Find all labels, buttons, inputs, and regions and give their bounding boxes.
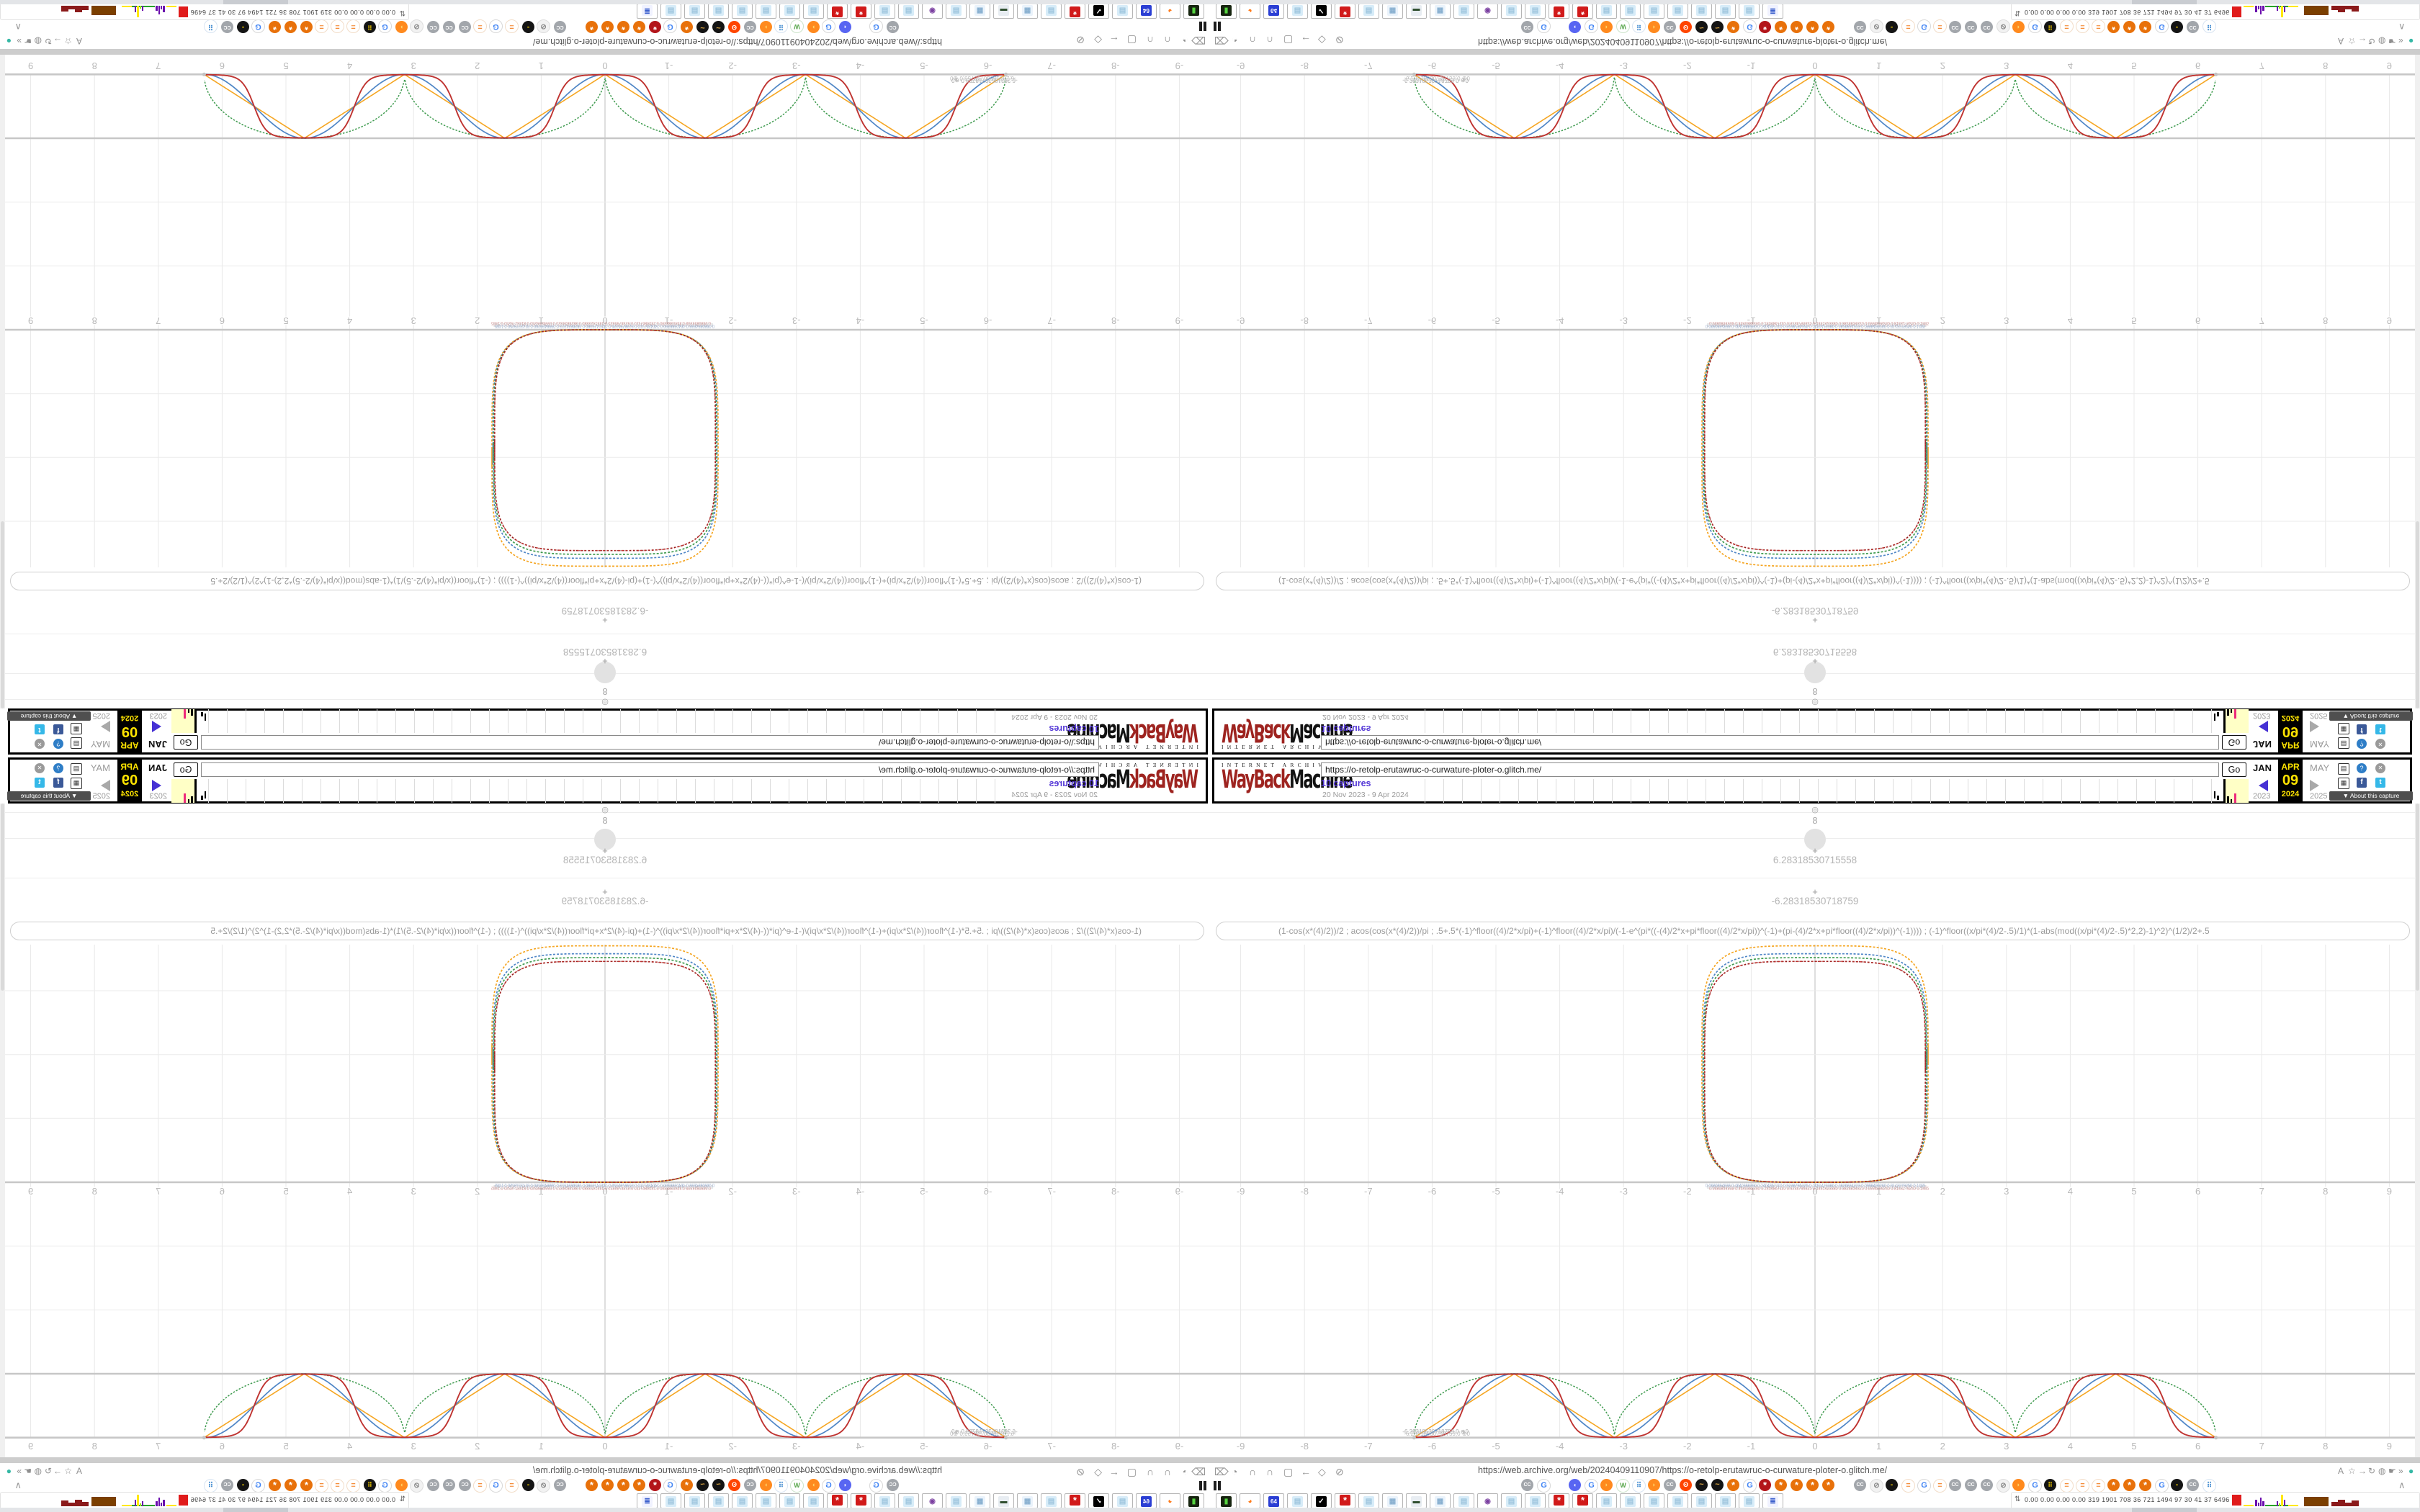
formula-input[interactable]: (1-cos(x*(4)/2))/2 ; acos(cos(x*(4)/2))/…	[1216, 922, 2410, 940]
cc-extension-icon[interactable]: CC	[1854, 21, 1866, 33]
go-button[interactable]: Go	[2222, 762, 2246, 777]
horizontal-scrollbar[interactable]	[1210, 1457, 2420, 1463]
google-extension-icon[interactable]: G	[2028, 1479, 2042, 1493]
firefox-extension-icon[interactable]: ◗	[395, 1479, 408, 1491]
taskbar-button-redgear[interactable]: *	[1335, 4, 1355, 19]
forward-icon[interactable]: →	[2358, 1466, 2367, 1476]
taskbar-button-notepad[interactable]: ▤	[684, 1493, 705, 1508]
taskbar-button-owl[interactable]: ◉	[922, 4, 943, 19]
google-extension-icon[interactable]: G	[869, 19, 883, 33]
sun-extension-icon[interactable]: *	[617, 1479, 629, 1491]
overflow-chevrons-icon[interactable]: »	[17, 1466, 22, 1476]
speaker-icon[interactable]: ◔	[1183, 35, 1188, 46]
stack-extension-icon[interactable]: ≡	[473, 1479, 487, 1493]
bookmark-star-icon[interactable]: ☆	[2348, 1466, 2356, 1476]
stack-extension-icon[interactable]: ≡	[331, 19, 344, 33]
go-button[interactable]: Go	[174, 735, 198, 750]
next-capture-arrow-icon[interactable]	[2310, 721, 2319, 732]
taskbar-button-firefox[interactable]: ◕	[1240, 4, 1260, 19]
about-this-capture-button[interactable]: ▼ About this capture	[7, 791, 91, 801]
translate-icon[interactable]: A	[2338, 36, 2344, 46]
speaker-icon[interactable]: ◔	[1232, 35, 1237, 46]
reddit-extension-icon[interactable]: ʘ	[1680, 21, 1692, 33]
stack-extension-icon[interactable]: ≡	[315, 19, 328, 33]
taskbar-button-floppy64[interactable]: 64	[1136, 1493, 1157, 1508]
taskbar-button-owl[interactable]: ◉	[922, 1493, 943, 1508]
taskbar-button-terminal[interactable]: ▮	[1216, 4, 1237, 19]
address-bar-url[interactable]: https://web.archive.org/web/202404091109…	[1478, 1465, 1887, 1475]
stack-extension-icon[interactable]: ≡	[505, 19, 519, 33]
sun-extension-icon[interactable]: *	[1791, 21, 1803, 33]
help-icon[interactable]: ?	[2357, 763, 2367, 773]
taskbar-button-redgear[interactable]: *	[1549, 1493, 1569, 1508]
pause-icon[interactable]	[1200, 22, 1203, 31]
twitter-share-icon[interactable]: t	[35, 724, 45, 734]
taskbar-button-calculator[interactable]: ▦	[1017, 4, 1038, 19]
capture-sparkline[interactable]	[207, 709, 995, 733]
cc-extension-icon[interactable]: CC	[443, 21, 455, 33]
overflow-chevrons-icon[interactable]: »	[2398, 36, 2403, 46]
active-tab[interactable]	[223, 1508, 288, 1512]
taskbar-button-calculator[interactable]: ▦	[1430, 1493, 1451, 1508]
back-icon[interactable]: ←	[1109, 1466, 1119, 1477]
bluegrid-extension-icon[interactable]: ⠿	[1632, 1479, 1646, 1493]
window-icon[interactable]: ▤	[2338, 737, 2349, 749]
taskbar-button-terminal[interactable]: ▮	[1183, 4, 1204, 19]
bird-extension-icon[interactable]: -	[522, 21, 534, 33]
active-tab[interactable]	[2132, 0, 2197, 4]
window-icon[interactable]: ▤	[71, 763, 82, 775]
sun-extension-icon[interactable]: *	[1806, 1479, 1819, 1491]
discord-extension-icon[interactable]: ◖	[1569, 21, 1581, 33]
sun-extension-icon[interactable]: *	[2107, 21, 2120, 33]
sun-extension-icon[interactable]: *	[586, 21, 598, 33]
taskbar-button-notepad[interactable]: ▤	[1501, 4, 1522, 19]
pause-icon[interactable]	[1204, 1481, 1207, 1490]
taskbar-button-notepad[interactable]: ▤	[684, 4, 705, 19]
x-max-value[interactable]: 6.28318530715558	[0, 647, 1210, 657]
bluegrid-extension-icon[interactable]: ⠿	[204, 19, 218, 33]
bird-extension-icon[interactable]: -	[1886, 1479, 1898, 1491]
facebook-share-icon[interactable]: f	[2357, 724, 2367, 734]
wave-extension-icon[interactable]: ~	[696, 1479, 709, 1491]
stack-extension-icon[interactable]: ≡	[331, 1479, 344, 1493]
lock-icon[interactable]: ⊘	[1076, 1466, 1085, 1478]
wayback-url-input[interactable]: https://o-retolp-erutawruc-o-curwature-p…	[1321, 762, 2219, 777]
x-min-value[interactable]: -6.28318530718759	[0, 896, 1210, 906]
taskbar-button-notepad[interactable]: ▤	[1667, 1493, 1688, 1508]
page-scrollbar-thumb[interactable]	[2416, 804, 2419, 991]
sun-extension-icon[interactable]: *	[1822, 21, 1834, 33]
globe-icon[interactable]: ◍	[35, 36, 42, 46]
taskbar-button-notepad[interactable]: ▤	[1112, 4, 1133, 19]
cc-extension-icon[interactable]: CC	[887, 1479, 899, 1491]
horizontal-scrollbar[interactable]	[0, 49, 1210, 55]
bluegrid-extension-icon[interactable]: ⠿	[1632, 19, 1646, 33]
wayback-url-input[interactable]: https://o-retolp-erutawruc-o-curwature-p…	[1321, 735, 2219, 750]
next-year-label[interactable]: 2025	[2310, 792, 2327, 801]
cc-extension-icon[interactable]: CC	[1521, 1479, 1533, 1491]
sun-extension-icon[interactable]: *	[1775, 21, 1787, 33]
page-scrollbar-thumb[interactable]	[1, 804, 4, 991]
wayback-url-input[interactable]: https://o-retolp-erutawruc-o-curwature-p…	[201, 735, 1099, 750]
bird-extension-icon[interactable]: -	[1886, 21, 1898, 33]
x-min-value[interactable]: -6.28318530718759	[1210, 896, 2420, 906]
move-icon[interactable]: +	[1210, 615, 2420, 626]
sun-extension-icon[interactable]: *	[269, 1479, 281, 1491]
bird-extension-icon[interactable]: -	[237, 1479, 249, 1491]
cc-extension-icon[interactable]: CC	[443, 1479, 455, 1491]
address-bar-url[interactable]: https://web.archive.org/web/202404091109…	[1478, 37, 1887, 47]
active-tab[interactable]	[223, 0, 288, 4]
lock-icon[interactable]: ⊘	[1335, 34, 1344, 46]
sun-extension-icon[interactable]: *	[2139, 1479, 2151, 1491]
active-tab[interactable]	[2132, 1508, 2197, 1512]
google-extension-icon[interactable]: G	[251, 19, 265, 33]
google-extension-icon[interactable]: G	[1537, 19, 1551, 33]
help-icon[interactable]: ?	[53, 739, 63, 749]
taskbar-button-monitor[interactable]: ▬	[993, 1493, 1014, 1508]
google-extension-icon[interactable]: G	[378, 1479, 392, 1493]
prev-month-label[interactable]: JAN	[2253, 762, 2272, 773]
prev-month-label[interactable]: JAN	[148, 762, 167, 773]
mute-extension-icon[interactable]: ⊘	[537, 19, 550, 33]
taskbar-button-notepad[interactable]: ▤	[732, 4, 753, 19]
headphones-icon[interactable]: ∩	[1266, 1466, 1273, 1477]
capture-sparkline[interactable]	[1425, 709, 2213, 733]
prev-month-label[interactable]: JAN	[148, 739, 167, 750]
reader-icon[interactable]: ☛	[2388, 36, 2396, 46]
google-extension-icon[interactable]: G	[1585, 1479, 1598, 1493]
reddit-extension-icon[interactable]: ʘ	[1680, 1479, 1692, 1491]
taskbar-button-notepad[interactable]: ▤	[660, 4, 681, 19]
google-extension-icon[interactable]: G	[378, 19, 392, 33]
taskbar-button-calculator[interactable]: ▦	[1430, 4, 1451, 19]
flower-extension-icon[interactable]: *	[649, 21, 661, 33]
google-extension-icon[interactable]: G	[2028, 19, 2042, 33]
taskbar-button-notepad[interactable]: ▤	[874, 4, 895, 19]
flower-extension-icon[interactable]: *	[649, 1479, 661, 1491]
taskbar-button-notepad[interactable]: ▤	[803, 4, 824, 19]
taskbar-button-redgear[interactable]: *	[1065, 1493, 1085, 1508]
status-dot-icon[interactable]: ●	[6, 36, 12, 46]
wayback-url-input[interactable]: https://o-retolp-erutawruc-o-curwature-p…	[201, 762, 1099, 777]
sun-extension-icon[interactable]: *	[2123, 1479, 2136, 1491]
cc-extension-icon[interactable]: CC	[1521, 21, 1533, 33]
google-extension-icon[interactable]: G	[489, 1479, 503, 1493]
wayback-logo[interactable]: INTERNET ARCHIVE WayBackMachine	[1222, 728, 1330, 750]
formula-input[interactable]: (1-cos(x*(4)/2))/2 ; acos(cos(x*(4)/2))/…	[10, 572, 1204, 590]
prev-year-label[interactable]: 2023	[150, 792, 167, 801]
google-extension-icon[interactable]: G	[2155, 1479, 2169, 1493]
next-capture-arrow-icon[interactable]	[101, 780, 110, 791]
taskbar-button-notepad[interactable]: ▤	[1620, 4, 1641, 19]
google-extension-icon[interactable]: G	[822, 1479, 835, 1493]
about-this-capture-button[interactable]: ▼ About this capture	[2329, 711, 2413, 721]
x-max-value[interactable]: 6.28318530715558	[1210, 855, 2420, 865]
taskbar-button-redgear[interactable]: *	[1065, 4, 1085, 19]
cc-extension-icon[interactable]: CC	[427, 21, 439, 33]
wave-extension-icon[interactable]: ~	[1711, 1479, 1724, 1491]
taskbar-button-notepad[interactable]: ▤	[898, 4, 919, 19]
taskbar-button-notepad[interactable]: ▤	[1739, 4, 1760, 19]
globe-icon[interactable]: ◍	[35, 1466, 42, 1476]
copy-icon[interactable]: ▢	[1283, 1466, 1293, 1478]
cc-extension-icon[interactable]: CC	[1965, 21, 1977, 33]
close-banner-icon[interactable]: ✕	[2375, 739, 2385, 749]
x-min-value[interactable]: -6.28318530718759	[1210, 606, 2420, 616]
taskbar-button-monitor[interactable]: ▬	[993, 4, 1014, 19]
taskbar-button-notepad[interactable]: ▤	[1501, 1493, 1522, 1508]
sun-extension-icon[interactable]: *	[1775, 1479, 1787, 1491]
screenshot-icon[interactable]: ▦	[71, 723, 82, 734]
next-year-label[interactable]: 2025	[93, 711, 110, 720]
google-extension-icon[interactable]: G	[869, 1479, 883, 1493]
taskbar-button-redgear[interactable]: *	[827, 4, 848, 19]
taskbar-button-notepad[interactable]: ▤	[779, 1493, 800, 1508]
google-extension-icon[interactable]: G	[1743, 1479, 1757, 1493]
collapse-chevron-icon[interactable]: ∧	[2398, 1480, 2406, 1491]
sun-extension-icon[interactable]: *	[2107, 1479, 2120, 1491]
google-extension-icon[interactable]: G	[1917, 1479, 1931, 1493]
wayback-logo[interactable]: INTERNET ARCHIVE WayBackMachine	[1090, 728, 1198, 750]
shield-icon[interactable]: ◇	[1318, 34, 1326, 46]
headphones-icon[interactable]: ∩	[1266, 35, 1273, 46]
taskbar-button-calculator[interactable]: ▦	[1382, 4, 1403, 19]
stack-extension-icon[interactable]: ≡	[2092, 1479, 2105, 1493]
taskbar-button-notepad[interactable]: ▤	[1358, 1493, 1379, 1508]
headphones-icon[interactable]: ∩	[1147, 35, 1154, 46]
taskbar-button-notepad[interactable]: ▤	[1739, 1493, 1760, 1508]
facebook-share-icon[interactable]: f	[53, 724, 63, 734]
forward-icon[interactable]: →	[2358, 36, 2367, 46]
taskbar-button-owl[interactable]: ◉	[1477, 4, 1498, 19]
forward-icon[interactable]: →	[53, 36, 62, 46]
taskbar-button-notepad[interactable]: ▤	[779, 4, 800, 19]
taskbar-button-notepad[interactable]: ▤	[708, 1493, 729, 1508]
facebook-share-icon[interactable]: f	[2357, 778, 2367, 788]
cc-extension-icon[interactable]: CC	[459, 1479, 471, 1491]
mute-extension-icon[interactable]: ⊘	[410, 19, 423, 33]
sun-extension-icon[interactable]: *	[1727, 21, 1739, 33]
reddit-extension-icon[interactable]: ʘ	[728, 1479, 740, 1491]
sun-extension-icon[interactable]: *	[681, 1479, 693, 1491]
flower-extension-icon[interactable]: *	[1759, 21, 1771, 33]
taskbar-button-notepad[interactable]: ▤	[946, 4, 967, 19]
sun-extension-icon[interactable]: *	[300, 21, 313, 33]
lock-icon[interactable]: ⊘	[1335, 1466, 1344, 1478]
headphones-icon[interactable]: ∩	[1147, 1466, 1154, 1477]
google-extension-icon[interactable]: G	[1917, 19, 1931, 33]
current-capture-highlight[interactable]	[171, 779, 194, 803]
prev-year-label[interactable]: 2023	[150, 711, 167, 720]
taskbar-button-redgear[interactable]: *	[851, 4, 871, 19]
status-dot-icon[interactable]: ●	[6, 1466, 12, 1476]
collapse-chevron-icon[interactable]: ∧	[14, 1480, 22, 1491]
reader-icon[interactable]: ☛	[24, 1466, 32, 1476]
go-button[interactable]: Go	[174, 762, 198, 777]
taskbar-button-calculator[interactable]: ▦	[1382, 1493, 1403, 1508]
discord-extension-icon[interactable]: ◖	[839, 21, 851, 33]
wave-extension-icon[interactable]: ~	[696, 21, 709, 33]
taskbar-button-notepad[interactable]: ▤	[1667, 4, 1688, 19]
cc-extension-icon[interactable]: CC	[887, 21, 899, 33]
headphones-icon[interactable]: ∩	[1249, 1466, 1256, 1477]
wave-extension-icon[interactable]: ~	[1711, 21, 1724, 33]
bird-extension-icon[interactable]: -	[522, 1479, 534, 1491]
tab-strip[interactable]	[1210, 1508, 2420, 1512]
stack-extension-icon[interactable]: ≡	[346, 1479, 360, 1493]
leaf-extension-icon[interactable]: W	[1616, 19, 1630, 33]
next-capture-arrow-icon[interactable]	[101, 721, 110, 732]
reload-icon[interactable]: ↻	[2368, 1466, 2375, 1476]
taskbar-button-calculator[interactable]: ▦	[969, 1493, 990, 1508]
cc-extension-icon[interactable]: CC	[1664, 21, 1676, 33]
cc-extension-icon[interactable]: CC	[1854, 1479, 1866, 1491]
horizontal-scrollbar[interactable]	[0, 1457, 1210, 1463]
cc-extension-icon[interactable]: CC	[554, 21, 566, 33]
taskbar-button-notepad[interactable]: ▤	[898, 1493, 919, 1508]
sun-extension-icon[interactable]: *	[586, 1479, 598, 1491]
stack-extension-icon[interactable]: ≡	[2092, 19, 2105, 33]
bluegrid-extension-icon[interactable]: ⠿	[204, 1479, 218, 1493]
google-extension-icon[interactable]: G	[663, 19, 677, 33]
pause-icon[interactable]	[1214, 1481, 1216, 1490]
cc-extension-icon[interactable]: CC	[2187, 1479, 2199, 1491]
taskbar-button-terminal[interactable]: ▮	[1216, 1493, 1237, 1508]
taskbar-button-floppy64[interactable]: 64	[1263, 4, 1284, 19]
wayback-logo[interactable]: INTERNET ARCHIVE WayBackMachine	[1090, 762, 1198, 784]
wayback-logo[interactable]: INTERNET ARCHIVE WayBackMachine	[1222, 762, 1330, 784]
firefox-extension-icon[interactable]: ◗	[1600, 1479, 1613, 1491]
taskbar-button-calculator[interactable]: ▦	[969, 4, 990, 19]
current-capture-highlight[interactable]	[2226, 779, 2249, 803]
bluegrid-extension-icon[interactable]: ⠿	[2202, 19, 2216, 33]
pause-icon[interactable]	[1204, 22, 1207, 31]
mute-extension-icon[interactable]: ⊘	[410, 1479, 423, 1493]
back-icon[interactable]: ←	[1109, 35, 1119, 46]
stack-extension-icon[interactable]: ≡	[346, 19, 360, 33]
facebook-share-icon[interactable]: f	[53, 778, 63, 788]
prev-month-label[interactable]: JAN	[2253, 739, 2272, 750]
flower-extension-icon[interactable]: *	[1759, 1479, 1771, 1491]
bookmark-star-icon[interactable]: ☆	[64, 36, 72, 46]
back-icon[interactable]: ←	[1301, 1466, 1311, 1477]
help-icon[interactable]: ?	[53, 763, 63, 773]
move-icon[interactable]: +	[0, 656, 1210, 667]
taskbar-button-notepad[interactable]: ▤	[946, 1493, 967, 1508]
taskbar-button-graffiti[interactable]: ✓	[1088, 1493, 1109, 1508]
google-extension-icon[interactable]: G	[251, 1479, 265, 1493]
stack-extension-icon[interactable]: ≡	[1933, 19, 1947, 33]
firefox-extension-icon[interactable]: ◗	[1648, 1479, 1660, 1491]
stack-extension-icon[interactable]: ≡	[1933, 1479, 1947, 1493]
bookmark-star-icon[interactable]: ☆	[64, 1466, 72, 1476]
zoom-value[interactable]: 8	[0, 815, 1210, 826]
stack-extension-icon[interactable]: ≡	[2076, 19, 2089, 33]
stack-extension-icon[interactable]: ≡	[2060, 1479, 2074, 1493]
stack-extension-icon[interactable]: ≡	[1901, 19, 1915, 33]
mute-extension-icon[interactable]: ⊘	[1870, 1479, 1883, 1493]
window-icon[interactable]: ▤	[2338, 763, 2349, 775]
taskbar-button-notepad[interactable]: ▤	[660, 1493, 681, 1508]
taskbar-button-bluedoc[interactable]: ≣	[637, 4, 658, 19]
speaker-icon[interactable]: ◔	[1232, 1466, 1237, 1477]
x-max-value[interactable]: 6.28318530715558	[1210, 647, 2420, 657]
sun-extension-icon[interactable]: *	[1791, 1479, 1803, 1491]
cc-extension-icon[interactable]: CC	[427, 1479, 439, 1491]
reload-icon[interactable]: ↻	[2368, 36, 2375, 46]
current-capture-highlight[interactable]	[2226, 709, 2249, 733]
pause-icon[interactable]	[1218, 22, 1221, 31]
next-capture-arrow-icon[interactable]	[2310, 780, 2319, 791]
headphones-icon[interactable]: ∩	[1164, 1466, 1171, 1477]
taskbar-button-redgear[interactable]: *	[827, 1493, 848, 1508]
google-extension-icon[interactable]: G	[1585, 19, 1598, 33]
close-banner-icon[interactable]: ✕	[2375, 763, 2385, 773]
sun-extension-icon[interactable]: *	[633, 1479, 645, 1491]
twitter-share-icon[interactable]: t	[2375, 778, 2385, 788]
move-icon[interactable]: +	[0, 615, 1210, 626]
cc-extension-icon[interactable]: CC	[221, 1479, 233, 1491]
translate-icon[interactable]: A	[76, 1466, 82, 1476]
taskbar-button-notepad[interactable]: ▤	[1644, 1493, 1664, 1508]
wave-extension-icon[interactable]: ~	[1695, 21, 1708, 33]
reader-icon[interactable]: ☛	[2388, 1466, 2396, 1476]
zoom-value[interactable]: 8	[1210, 686, 2420, 697]
sun-extension-icon[interactable]: *	[633, 21, 645, 33]
next-year-label[interactable]: 2025	[93, 792, 110, 801]
close-banner-icon[interactable]: ✕	[35, 763, 45, 773]
cc-extension-icon[interactable]: CC	[1981, 1479, 1993, 1491]
shield-icon[interactable]: ◇	[1094, 1466, 1102, 1478]
trash-icon[interactable]: ⌦	[1191, 1466, 1206, 1478]
reload-icon[interactable]: ↻	[45, 36, 52, 46]
taskbar-button-monitor[interactable]: ▬	[1406, 4, 1427, 19]
target-icon[interactable]: ◎	[1210, 698, 2420, 707]
headphones-icon[interactable]: ∩	[1249, 35, 1256, 46]
taskbar-button-notepad[interactable]: ▤	[1041, 1493, 1062, 1508]
mute-extension-icon[interactable]: ⊘	[1996, 19, 2010, 33]
cc-extension-icon[interactable]: CC	[1949, 1479, 1961, 1491]
taskbar-button-notepad[interactable]: ▤	[1596, 4, 1617, 19]
trash-icon[interactable]: ⌦	[1214, 1466, 1229, 1478]
status-dot-icon[interactable]: ●	[2408, 1466, 2414, 1476]
bluegrid-extension-icon[interactable]: ⠿	[2202, 1479, 2216, 1493]
next-month-label[interactable]: MAY	[91, 739, 110, 750]
blackgrid-extension-icon[interactable]: ⠿	[364, 1479, 376, 1491]
target-icon[interactable]: ◎	[0, 805, 1210, 814]
stack-extension-icon[interactable]: ≡	[2060, 19, 2074, 33]
taskbar-button-notepad[interactable]: ▤	[756, 1493, 776, 1508]
page-scrollbar-thumb[interactable]	[2416, 521, 2419, 708]
sun-extension-icon[interactable]: *	[617, 21, 629, 33]
taskbar-button-notepad[interactable]: ▤	[1525, 4, 1546, 19]
stack-extension-icon[interactable]: ≡	[505, 1479, 519, 1493]
status-dot-icon[interactable]: ●	[2408, 36, 2414, 46]
taskbar-button-notepad[interactable]: ▤	[1691, 4, 1712, 19]
firefox-extension-icon[interactable]: ◗	[807, 21, 820, 33]
forward-icon[interactable]: →	[53, 1466, 62, 1476]
pause-icon[interactable]	[1200, 1481, 1203, 1490]
next-month-label[interactable]: MAY	[91, 762, 110, 773]
sun-extension-icon[interactable]: *	[1822, 1479, 1834, 1491]
discord-extension-icon[interactable]: ◖	[839, 1479, 851, 1491]
taskbar-button-firefox[interactable]: ◕	[1160, 1493, 1180, 1508]
stack-extension-icon[interactable]: ≡	[315, 1479, 328, 1493]
firefox-extension-icon[interactable]: ◗	[760, 1479, 772, 1491]
google-extension-icon[interactable]: G	[663, 1479, 677, 1493]
